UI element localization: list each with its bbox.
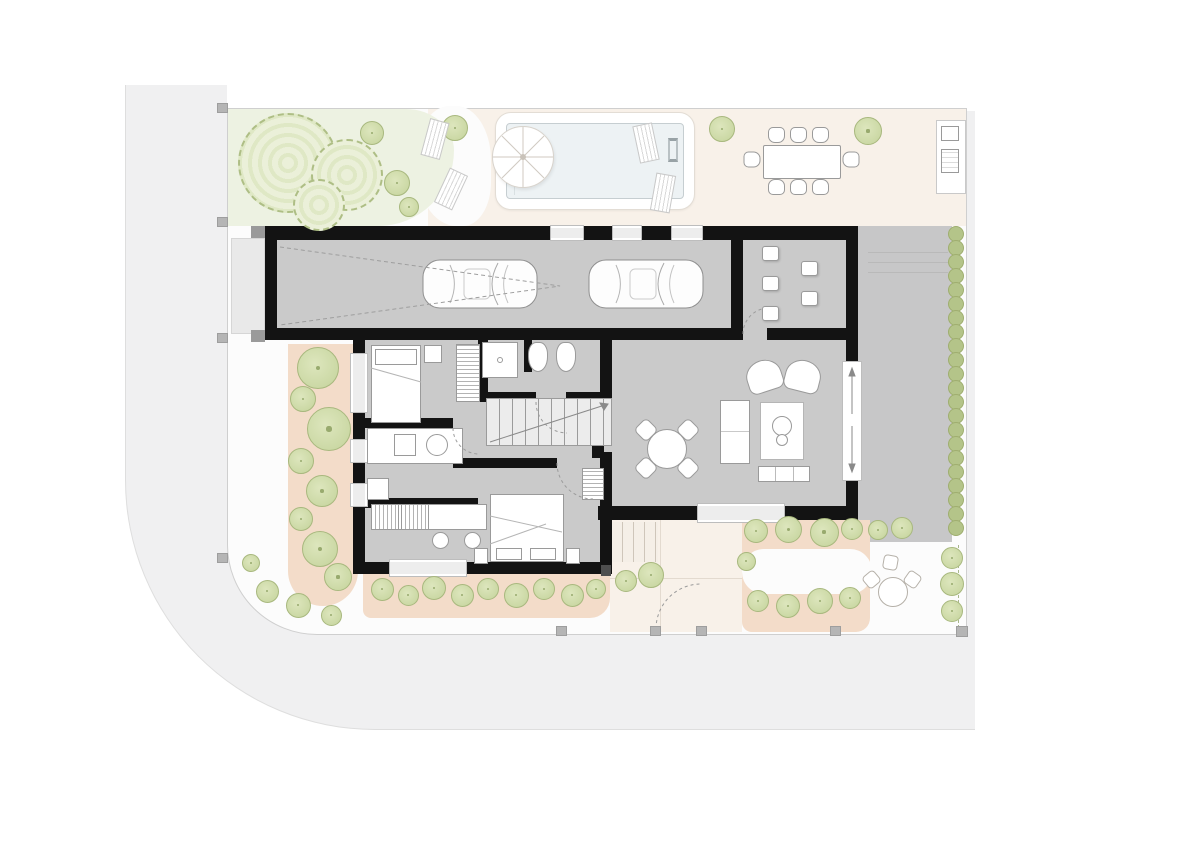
bed-pillow (375, 349, 417, 365)
tree-icon (775, 516, 802, 543)
seat-icon (801, 261, 818, 276)
window-bedroom-w (351, 354, 367, 412)
nightstand (566, 548, 580, 564)
car-icon (586, 252, 706, 316)
post-icon (217, 333, 228, 343)
nightstand (474, 548, 488, 564)
tree-icon (737, 552, 756, 571)
tree-icon (398, 585, 419, 606)
grill-icon (941, 149, 959, 173)
outdoor-sink-icon (941, 126, 959, 141)
bed-pillow (530, 548, 556, 560)
tree-icon (360, 121, 384, 145)
sliding-door-east (843, 362, 861, 480)
fridge-icon (367, 478, 389, 500)
wall-west-garage (265, 226, 277, 340)
tree-icon (638, 562, 664, 588)
garage-jamb (251, 330, 265, 342)
tree-icon (868, 520, 888, 540)
garage-apron (231, 238, 265, 334)
tree-icon (615, 570, 637, 592)
window-kitchen-w (351, 440, 367, 462)
tree-icon (533, 578, 555, 600)
nightstand (424, 345, 442, 363)
tree-icon (286, 593, 311, 618)
gchair-icon (882, 554, 899, 571)
tree-icon (841, 518, 863, 540)
downspout (601, 565, 611, 576)
wall-south-garage (265, 328, 743, 340)
bidet-icon (556, 342, 576, 372)
tree-icon (371, 578, 394, 601)
wall-hall-top (767, 328, 846, 340)
chair-icon (768, 127, 785, 143)
tree-icon (941, 547, 963, 569)
kitchen-sink-icon (394, 434, 416, 456)
cooktop-icon (426, 434, 448, 456)
seat-icon (762, 306, 779, 321)
table-decor (772, 416, 792, 436)
wardrobe (456, 344, 480, 402)
tree-icon (324, 563, 352, 591)
bigtree-icon (293, 179, 345, 231)
seat-icon (801, 291, 818, 306)
post-icon (217, 217, 228, 227)
wall-living-west-up (600, 328, 612, 392)
chair-icon (744, 152, 761, 168)
post-icon (217, 103, 228, 113)
tree-icon (451, 584, 474, 607)
hedge-icon (948, 520, 964, 536)
window-garage-1 (551, 226, 583, 240)
pool-ladder-icon (668, 138, 678, 162)
chair-icon (843, 152, 860, 168)
tree-icon (940, 572, 964, 596)
chair-icon (768, 179, 785, 195)
post-icon (830, 626, 841, 636)
chair-icon (812, 179, 829, 195)
chair-icon (790, 127, 807, 143)
post-icon (556, 626, 567, 636)
tree-icon (810, 518, 839, 547)
shower-drain (497, 357, 503, 363)
tree-icon (586, 579, 606, 599)
entry-steps (612, 522, 658, 562)
tree-icon (256, 580, 279, 603)
driveway-marking (868, 252, 948, 253)
tree-icon (854, 117, 882, 145)
tree-icon (744, 519, 768, 543)
window-garage-2 (613, 226, 641, 240)
tree-icon (422, 576, 446, 600)
tree-icon (807, 588, 833, 614)
car-icon (420, 252, 540, 316)
wardrobe (582, 468, 604, 500)
tree-icon (399, 197, 419, 217)
window-garage-3 (672, 226, 702, 240)
tree-icon (307, 407, 351, 451)
window-study-w (351, 484, 367, 506)
outdoor-dining-table (763, 145, 841, 179)
tree-icon (891, 517, 913, 539)
tree-icon (709, 116, 735, 142)
window-living-s (698, 504, 784, 522)
tree-icon (289, 507, 313, 531)
post-icon (217, 553, 228, 563)
stool-icon (464, 532, 481, 549)
driveway-marking (868, 262, 948, 263)
table-decor (776, 434, 788, 446)
post-icon (956, 626, 968, 637)
parasol-icon (492, 126, 554, 188)
seat-icon (762, 246, 779, 261)
post-icon (696, 626, 707, 636)
floor-garage-hall (277, 238, 846, 338)
sofa (720, 400, 750, 464)
tree-icon (288, 448, 314, 474)
driveway (858, 226, 952, 542)
post-icon (650, 626, 661, 636)
site-floor-plan (0, 0, 1200, 848)
tree-icon (747, 590, 769, 612)
tree-icon (839, 587, 861, 609)
tree-icon (242, 554, 260, 572)
tree-icon (776, 594, 800, 618)
tree-icon (941, 600, 963, 622)
radiator-unit (401, 504, 429, 530)
driveway-marking (868, 272, 948, 273)
chair-icon (790, 179, 807, 195)
car-body (589, 260, 703, 308)
tree-icon (297, 347, 339, 389)
tree-icon (321, 605, 342, 626)
tree-icon (290, 386, 316, 412)
garage-jamb (251, 226, 265, 238)
stool-icon (432, 532, 449, 549)
tree-icon (384, 170, 410, 196)
bed-pillow (496, 548, 522, 560)
tree-icon (306, 475, 338, 507)
staircase (486, 398, 612, 446)
window-master-s (390, 560, 466, 576)
chair-icon (812, 127, 829, 143)
toilet-icon (528, 342, 548, 372)
wall-master-north (453, 458, 557, 468)
tree-icon (302, 531, 338, 567)
car-body (423, 260, 537, 308)
tree-icon (477, 578, 499, 600)
tree-icon (561, 584, 584, 607)
sideboard (758, 466, 810, 482)
sofa-cushion-line (721, 431, 749, 432)
tree-icon (504, 583, 529, 608)
seat-icon (762, 276, 779, 291)
radiator-unit (371, 504, 399, 530)
wall-mudroom-west (731, 240, 743, 336)
